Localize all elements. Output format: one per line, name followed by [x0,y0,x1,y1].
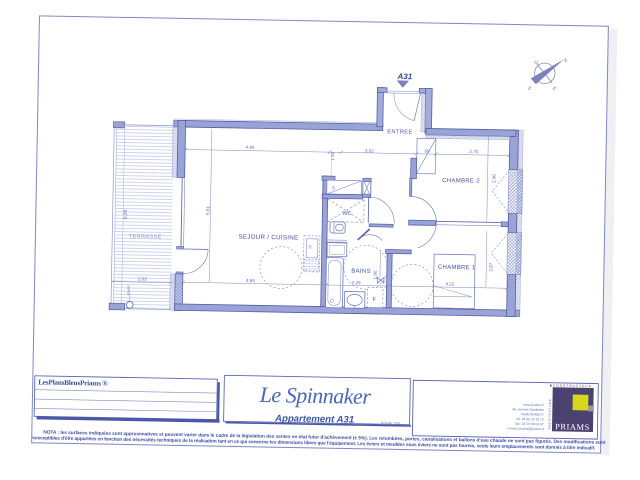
svg-text:4.22: 4.22 [445,282,454,287]
svg-text:60: 60 [332,186,336,190]
svg-text:LesPlansBleusPriams ®: LesPlansBleusPriams ® [38,378,108,387]
svg-text:2.02: 2.02 [138,276,147,281]
svg-text:6.29: 6.29 [123,209,128,218]
svg-text:69: 69 [424,149,430,154]
svg-text:3.32: 3.32 [365,148,374,153]
svg-text:1.90: 1.90 [373,270,378,279]
svg-text:WC: WC [342,211,351,217]
svg-text:4.94: 4.94 [245,145,254,150]
svg-text:4.94: 4.94 [246,278,255,283]
svg-text:2.87: 2.87 [488,262,493,271]
svg-text:Echelle 1/50: Echelle 1/50 [381,421,400,425]
svg-text:SEJOUR / CUISINE: SEJOUR / CUISINE [238,234,298,242]
svg-text:CHAMBRE 2: CHAMBRE 2 [442,178,480,185]
svg-text:2.29: 2.29 [352,280,361,285]
svg-text:A31: A31 [396,72,412,81]
svg-text:BAINS: BAINS [351,269,371,275]
svg-text:2.90: 2.90 [491,174,496,183]
svg-text:60x60: 60x60 [127,286,131,296]
svg-text:60: 60 [308,245,312,249]
svg-text:ARCHITECTURE: ARCHITECTURE [547,399,552,430]
svg-text:1.53: 1.53 [330,151,335,160]
svg-text:F: F [372,297,376,303]
svg-text:PRIAMS: PRIAMS [555,422,590,432]
svg-text:ENTREE: ENTREE [387,129,412,135]
svg-text:CHAMBRE 1: CHAMBRE 1 [438,265,476,272]
svg-text:TERRASSE: TERRASSE [129,234,162,241]
svg-text:Appartement A31: Appartement A31 [274,413,354,425]
svg-text:Le Spinnaker: Le Spinnaker [258,382,371,409]
svg-text:2.70: 2.70 [469,149,478,154]
svg-text:5.91: 5.91 [205,205,210,214]
